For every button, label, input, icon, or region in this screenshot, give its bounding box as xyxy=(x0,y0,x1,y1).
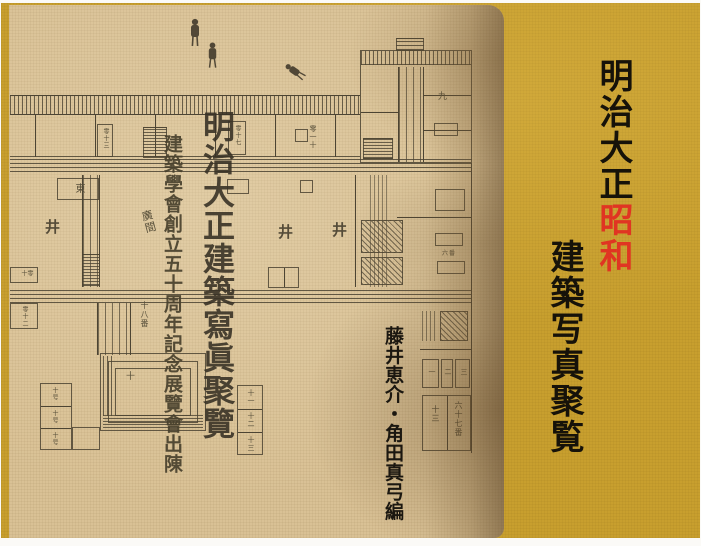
exhibit-box: 三 xyxy=(455,359,470,388)
cover-title-era-black: 明治大正 xyxy=(594,58,631,202)
annotation-box xyxy=(434,123,458,136)
cover-title-line1: 明治大正昭和 xyxy=(595,58,629,274)
plan-annotation: 十 xyxy=(125,371,134,381)
plan-annotation: 九 xyxy=(437,91,446,101)
building-corridor xyxy=(398,67,424,162)
corridor-band-middle xyxy=(10,287,472,303)
hatched-room xyxy=(361,257,403,285)
room-label: 十八番 xyxy=(140,301,148,328)
person-sketch-icon xyxy=(281,59,312,87)
column-mark: 井 xyxy=(332,224,347,239)
exhibit-box xyxy=(72,427,100,450)
cover-title-era-red: 昭和 xyxy=(594,202,631,274)
room-label: 廣間 xyxy=(139,209,156,235)
exhibit-box: 一 xyxy=(422,359,439,388)
annotation-box: 零十三 xyxy=(97,124,113,157)
hatched-room xyxy=(361,220,403,253)
column-mark: 井 xyxy=(278,226,293,241)
floor-plan-paper: 九 零十三 零十七 零一十 東 xyxy=(9,5,504,538)
stairs-hatch xyxy=(82,254,100,286)
right-outer-wall xyxy=(471,163,472,453)
annotation-box xyxy=(435,233,463,246)
top-wall-hatched-band xyxy=(10,95,360,115)
exhibit-box-column: 十一 十二 十三 xyxy=(237,385,263,455)
chimney xyxy=(396,38,424,51)
lower-corridor xyxy=(97,303,131,355)
cover-title-line2: 建築写真聚覧 xyxy=(546,239,580,455)
stairs-hatch xyxy=(363,138,393,159)
column-mark: 井 xyxy=(45,221,60,236)
annotation-box xyxy=(295,129,308,142)
person-sketch-icon xyxy=(206,41,219,72)
person-sketch-icon xyxy=(188,18,202,50)
plan-caption: 建築學會創立五十周年記念展覽會出陳 xyxy=(162,134,181,474)
hatched-room xyxy=(440,311,468,341)
annotation-box: 零十二 xyxy=(10,303,38,329)
annotation-box xyxy=(435,189,465,211)
annotation-box xyxy=(268,267,299,288)
legend-box: 六十七番 十三 xyxy=(422,395,471,451)
plan-annotation: 零一十 xyxy=(309,125,316,149)
nested-pavilion xyxy=(100,353,206,431)
annotation-box xyxy=(300,180,313,193)
editors-credit: 藤井恵介・角田真弓編 xyxy=(383,326,402,521)
floor-plan-drawing: 九 零十三 零十七 零一十 東 xyxy=(9,5,504,538)
exhibit-box-column: 十号 十号 十号 xyxy=(40,383,72,450)
book-cover-photo: 九 零十三 零十七 零一十 東 xyxy=(0,0,701,546)
annotation-box: 零十 xyxy=(10,267,38,283)
plan-title: 明治大正建築寫眞聚覽 xyxy=(201,110,233,440)
cover-background: 九 零十三 零十七 零一十 東 xyxy=(1,3,700,538)
plan-annotation: 六番 xyxy=(442,251,456,257)
exhibit-box: 二 xyxy=(441,359,453,388)
annotation-box xyxy=(437,261,465,274)
